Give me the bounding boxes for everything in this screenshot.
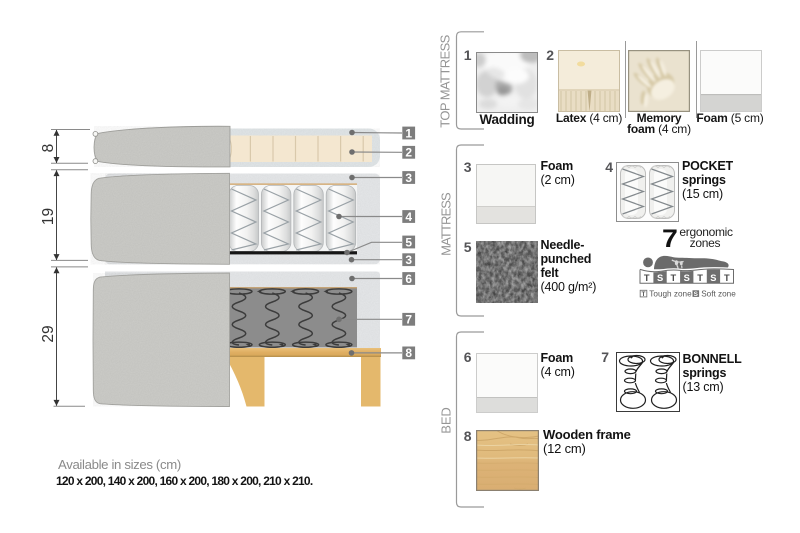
- svg-text:T: T: [671, 273, 677, 283]
- svg-text:6: 6: [405, 272, 412, 286]
- svg-text:3: 3: [405, 171, 412, 185]
- svg-text:S: S: [710, 273, 716, 283]
- svg-text:T: T: [724, 273, 730, 283]
- svg-text:2: 2: [405, 146, 412, 160]
- svg-text:29: 29: [40, 325, 57, 342]
- svg-text:7: 7: [405, 313, 412, 327]
- svg-text:S: S: [694, 291, 699, 298]
- svg-text:8: 8: [40, 144, 57, 153]
- svg-text:T: T: [644, 273, 650, 283]
- svg-text:4: 4: [405, 210, 412, 224]
- svg-text:Tough zone: Tough zone: [649, 290, 692, 299]
- svg-text:T: T: [697, 273, 703, 283]
- svg-text:8: 8: [405, 346, 412, 360]
- svg-text:T: T: [642, 291, 646, 298]
- svg-text:1: 1: [405, 126, 412, 140]
- svg-text:Soft zone: Soft zone: [701, 290, 736, 299]
- svg-text:19: 19: [40, 208, 57, 225]
- svg-text:S: S: [684, 273, 690, 283]
- svg-text:3: 3: [405, 253, 412, 267]
- svg-text:S: S: [657, 273, 663, 283]
- svg-text:5: 5: [405, 235, 412, 249]
